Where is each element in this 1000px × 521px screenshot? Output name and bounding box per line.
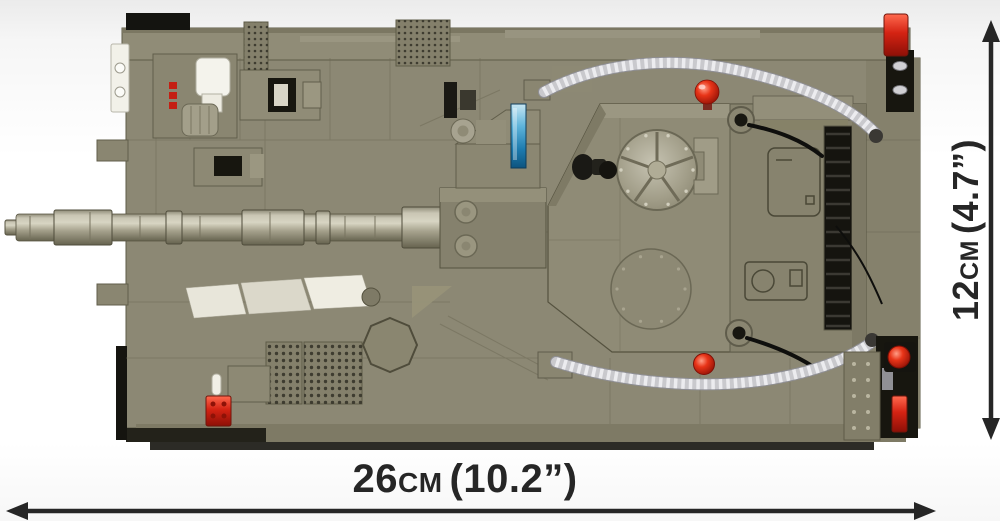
- tow-hook: [97, 140, 128, 161]
- white-lamp: [212, 374, 221, 395]
- track-segment-bottom: [150, 442, 874, 450]
- product-dimension-image: 26CM(10.2”) 12CM(4.7”): [0, 0, 1000, 521]
- red-signal-light: [694, 354, 715, 375]
- vent-grille: [244, 22, 268, 70]
- height-dimension-label: 12CM(4.7”): [945, 139, 986, 321]
- marker-lights-red: [169, 82, 177, 109]
- red-signal-light: [888, 346, 910, 368]
- tank-top-view-figure: 26CM(10.2”) 12CM(4.7”): [0, 0, 1000, 521]
- headlight: [115, 87, 125, 97]
- turret: [548, 80, 882, 370]
- fuel-cap: [362, 288, 380, 306]
- octagon-hatch: [363, 318, 417, 372]
- loader-hatch: [611, 249, 691, 329]
- riveted-flap: [844, 352, 880, 440]
- engine-grille: [266, 342, 302, 404]
- periscope: [196, 58, 230, 96]
- tail-lamp: [884, 14, 908, 56]
- headlight-plate: [111, 44, 129, 112]
- tow-hook: [97, 284, 128, 305]
- vent-grille: [396, 20, 450, 66]
- track-segment-top: [126, 13, 190, 30]
- headlight: [115, 63, 125, 73]
- engine-grille: [304, 342, 362, 404]
- tank-model: [5, 13, 920, 450]
- tail-lamp: [892, 396, 907, 432]
- red-lamp-block: [206, 396, 231, 426]
- width-dimension-label: 26CM(10.2”): [352, 457, 577, 501]
